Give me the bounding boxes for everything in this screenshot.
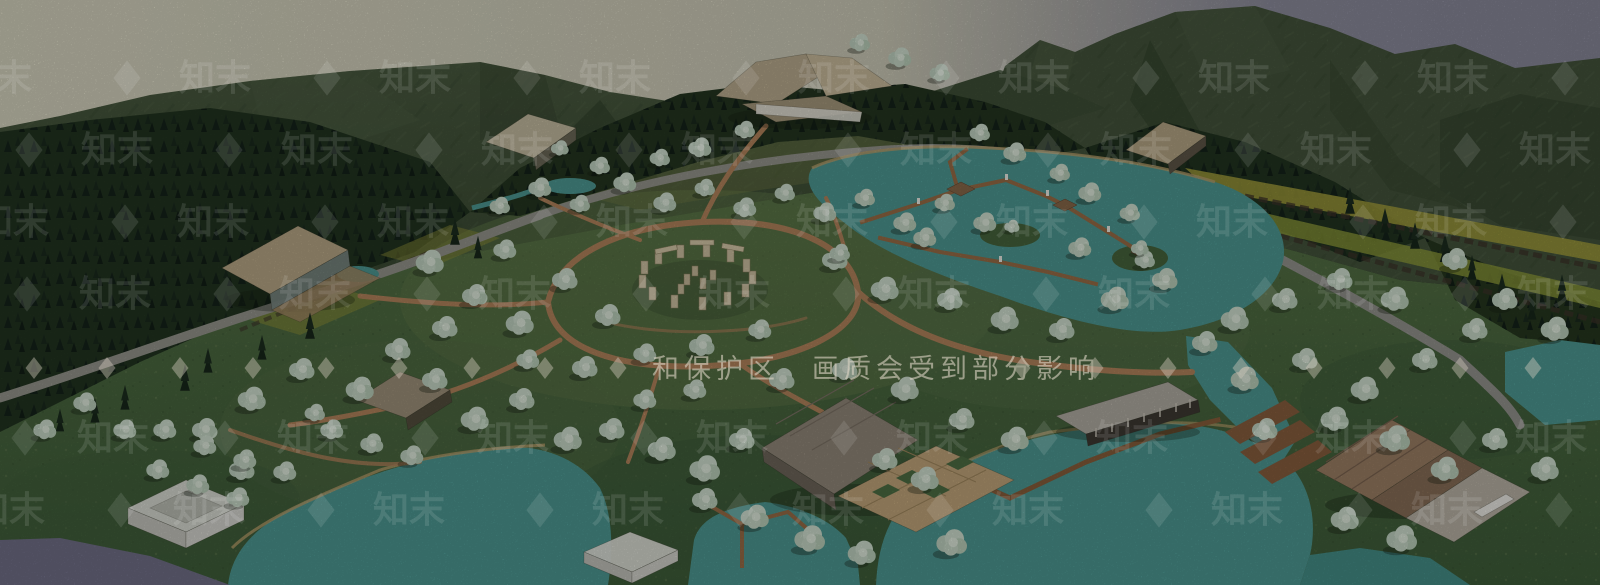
watermark-tile-text: 知末 (698, 274, 770, 315)
watermark-tile-text: 知末 (1315, 418, 1387, 459)
watermark-tile-text: 知末 (1517, 274, 1589, 315)
watermark-tile-text: 知末 (377, 202, 449, 243)
watermark-tile-text: 知末 (0, 58, 32, 99)
watermark-tile-text: 知末 (1317, 274, 1389, 315)
watermark-tile-text: 知末 (1411, 490, 1483, 531)
watermark-tile-text: 知末 (0, 202, 49, 243)
aerial-render-canvas: 知末知末知末知末知末知末知末知末知末知末知末知末知末知末知末知末知末知末知末知末… (0, 0, 1600, 585)
watermark-tile-text: 知末 (1519, 130, 1591, 171)
watermark-tile-text: 知末 (79, 274, 151, 315)
watermark-tile-text: 知末 (177, 202, 249, 243)
watermark-tile-text: 知末 (481, 130, 553, 171)
watermark-tile-text: 知末 (696, 418, 768, 459)
watermark-tile-text: 知末 (998, 58, 1070, 99)
watermark-tile-text: 知末 (1300, 130, 1372, 171)
watermark-tile-text: 知末 (0, 490, 45, 531)
watermark-tile-text: 知末 (596, 202, 668, 243)
watermark-tile-text: 知末 (279, 274, 351, 315)
watermark-tile-text: 知末 (896, 418, 968, 459)
watermark-tile-text: 知末 (900, 130, 972, 171)
watermark-tile-text: 知末 (992, 490, 1064, 531)
render-scene: 知末知末知末知末知末知末知末知末知末知末知末知末知末知末知末知末知末知末知末知末… (0, 0, 1600, 585)
watermark-tile-text: 知末 (173, 490, 245, 531)
watermark-tile-text: 知末 (277, 418, 349, 459)
watermark-tile-text: 知末 (1096, 418, 1168, 459)
watermark-tile-text: 知末 (77, 418, 149, 459)
watermark-tile-text: 知末 (179, 58, 251, 99)
watermark-tile-text: 知末 (792, 490, 864, 531)
watermark-tile-text: 知末 (996, 202, 1068, 243)
watermark-tile-text: 知末 (479, 274, 551, 315)
watermark-tile-text: 知末 (373, 490, 445, 531)
watermark-tile-text: 知末 (379, 58, 451, 99)
watermark-tile-text: 知末 (898, 274, 970, 315)
watermark-notice-text: 和保护区 画质会受到部分影响 (652, 354, 1100, 385)
watermark-tile-text: 知末 (1515, 418, 1587, 459)
watermark-tile-text: 知末 (1417, 58, 1489, 99)
watermark-tile-text: 知末 (1211, 490, 1283, 531)
watermark-tile-text: 知末 (477, 418, 549, 459)
watermark-tile-text: 知末 (796, 202, 868, 243)
watermark-tile-text: 知末 (1198, 58, 1270, 99)
watermark-tile-text: 知末 (1415, 202, 1487, 243)
watermark-tile-text: 知末 (1196, 202, 1268, 243)
watermark-tile-text: 知末 (798, 58, 870, 99)
watermark-tile-text: 知末 (1098, 274, 1170, 315)
watermark-tile-text: 知末 (81, 130, 153, 171)
watermark-tile-text: 知末 (592, 490, 664, 531)
watermark-tile-text: 知末 (681, 130, 753, 171)
watermark-tile-text: 知末 (1100, 130, 1172, 171)
watermark-tile-text: 知末 (579, 58, 651, 99)
watermark-tile-text: 知末 (281, 130, 353, 171)
